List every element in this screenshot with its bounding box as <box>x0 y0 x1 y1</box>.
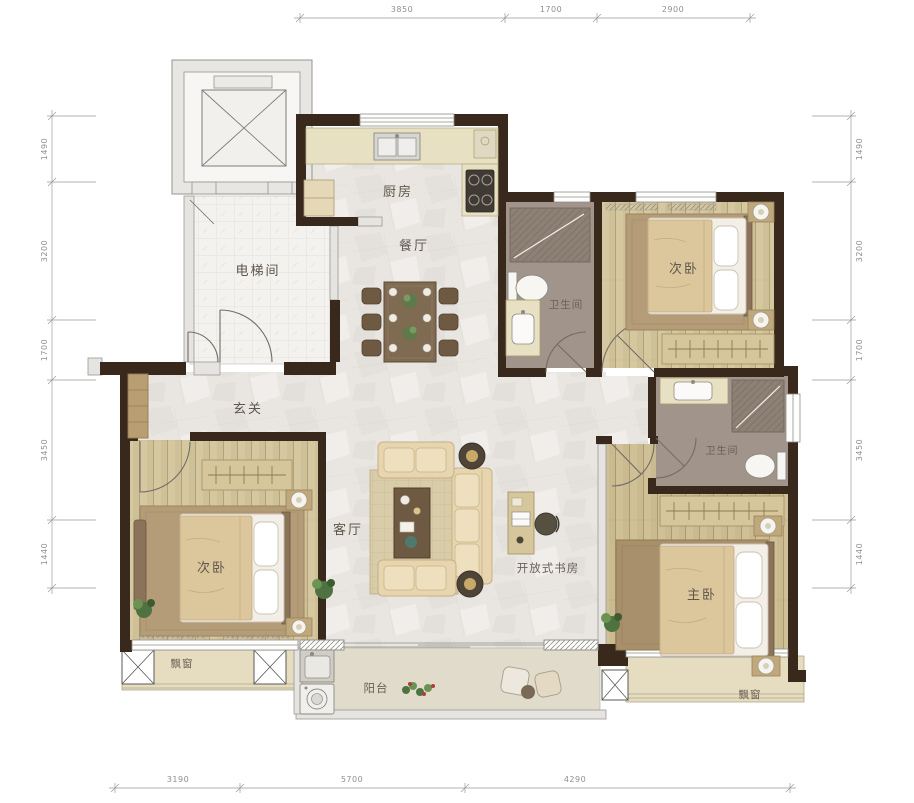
dim-left-1: 1490 <box>40 138 49 160</box>
bed-icon <box>648 216 752 316</box>
label-balcony: 阳台 <box>364 681 389 695</box>
elevator-shaft <box>172 60 312 194</box>
dim-right: 1490 3200 1700 3450 1440 <box>812 110 864 594</box>
bath-top-window-icon <box>554 192 590 202</box>
dim-left: 1490 3200 1700 3450 1440 <box>40 110 96 594</box>
dim-bottom-3: 4290 <box>564 775 586 784</box>
label-elevator-hall: 电梯间 <box>235 264 280 279</box>
vanity-icon <box>660 378 728 404</box>
stove-icon <box>466 170 494 212</box>
bath-right-window-icon <box>786 394 800 442</box>
small-appliance-icon <box>474 130 496 158</box>
dim-right-4: 3450 <box>855 439 864 461</box>
coffee-table-icon <box>394 488 430 558</box>
dim-top: 3850 1700 2900 <box>294 5 756 23</box>
balcony-sill-left-icon <box>300 640 344 650</box>
label-dining: 餐厅 <box>399 238 429 254</box>
laundry-sink-icon <box>300 650 334 682</box>
dim-ticks <box>47 112 96 592</box>
dim-left-4: 3450 <box>40 439 49 461</box>
balcony-sill-right-icon <box>544 640 598 650</box>
foyer-fixtures <box>128 374 148 438</box>
dim-bottom-2: 5700 <box>341 775 363 784</box>
bedroom-tr-window-icon <box>636 192 716 202</box>
label-bath-top: 卫生间 <box>549 298 584 311</box>
toilet-icon <box>745 452 786 480</box>
dim-right-1: 1490 <box>855 138 864 160</box>
bedroom-left-window-icon <box>132 640 298 650</box>
vanity-icon <box>506 300 540 356</box>
label-living: 客厅 <box>333 522 363 538</box>
label-bedroom-left: 次卧 <box>197 560 227 576</box>
label-bath-right: 卫生间 <box>706 444 739 457</box>
fridge-icon <box>304 180 334 216</box>
dim-top-1: 3850 <box>391 5 413 14</box>
dim-right-5: 1440 <box>855 543 864 565</box>
washer-icon <box>300 684 334 714</box>
bay-window-left <box>122 650 302 690</box>
bench-icon <box>134 520 146 610</box>
dim-left-3: 1700 <box>40 339 49 361</box>
label-bay-left: 飘窗 <box>171 657 194 670</box>
label-kitchen: 厨房 <box>383 184 413 200</box>
dim-ticks <box>812 112 856 592</box>
dim-bottom-1: 3190 <box>167 775 189 784</box>
label-foyer: 玄关 <box>233 402 263 417</box>
label-bedroom-tr: 次卧 <box>669 261 699 277</box>
floor-plan: 厨房 餐厅 卫生间 次卧 电梯间 玄关 客厅 开放式书房 次卧 主卧 卫生间 飘… <box>0 0 914 803</box>
dim-bottom: 3190 5700 4290 <box>109 775 796 793</box>
kitchen-sink-icon <box>374 133 420 160</box>
dim-top-2: 1700 <box>540 5 562 14</box>
dining-set <box>362 282 458 362</box>
desk-icon <box>508 492 534 554</box>
dim-right-3: 1700 <box>855 339 864 361</box>
floor-plan-page: 厨房 餐厅 卫生间 次卧 电梯间 玄关 客厅 开放式书房 次卧 主卧 卫生间 飘… <box>0 0 914 803</box>
dim-left-5: 1440 <box>40 543 49 565</box>
label-bay-right: 飘窗 <box>739 688 762 701</box>
dim-top-3: 2900 <box>662 5 684 14</box>
wardrobe-icon <box>202 460 292 490</box>
dim-right-2: 3200 <box>855 240 864 262</box>
kitchen-window-icon <box>360 114 454 126</box>
dim-left-2: 3200 <box>40 240 49 262</box>
label-study: 开放式书房 <box>517 561 580 575</box>
corridor-floor <box>498 376 648 444</box>
wardrobe-icon <box>662 334 774 364</box>
label-master: 主卧 <box>687 588 717 603</box>
